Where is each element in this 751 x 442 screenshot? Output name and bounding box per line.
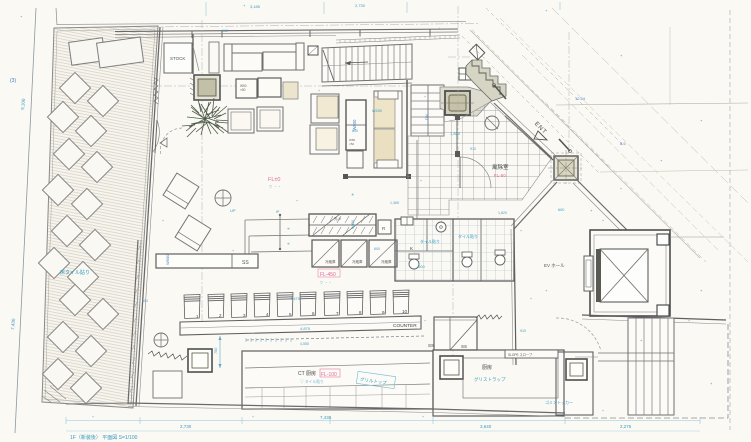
svg-text:冷蔵庫: 冷蔵庫: [352, 259, 363, 264]
svg-text:7,430: 7,430: [10, 318, 16, 330]
svg-text:+: +: [602, 219, 604, 223]
svg-text:910: 910: [520, 329, 526, 333]
svg-text:W200: W200: [372, 109, 382, 113]
svg-text:+: +: [232, 249, 234, 253]
svg-text:1,365: 1,365: [390, 201, 399, 205]
svg-text:床タイル貼り: 床タイル貼り: [60, 269, 90, 276]
svg-text:COUNTER: COUNTER: [393, 323, 417, 329]
svg-text:K: K: [410, 246, 413, 251]
svg-text:+: +: [296, 199, 298, 203]
svg-text:+: +: [92, 415, 94, 419]
svg-text:8.5: 8.5: [620, 141, 626, 146]
svg-text:FL±0: FL±0: [268, 177, 281, 183]
svg-text:+: +: [424, 95, 426, 99]
svg-text:SS: SS: [428, 343, 434, 348]
svg-text:910: 910: [470, 147, 476, 151]
svg-text:4,875: 4,875: [300, 326, 311, 331]
svg-text:7,430: 7,430: [320, 415, 332, 420]
svg-text:1F（新装後） 平面図 S=1/100: 1F（新装後） 平面図 S=1/100: [70, 434, 138, 441]
svg-text:ゴミストッカー: ゴミストッカー: [545, 399, 573, 405]
svg-text:+: +: [688, 319, 690, 323]
svg-text:▽ タイル貼り: ▽ タイル貼り: [300, 379, 324, 384]
svg-text:+: +: [530, 297, 532, 301]
svg-text:×50: ×50: [349, 142, 354, 146]
svg-text:600: 600: [418, 264, 425, 269]
svg-text:×50: ×50: [240, 88, 246, 92]
svg-text:W900: W900: [165, 254, 170, 265]
svg-text:STOCK: STOCK: [170, 56, 185, 61]
svg-text:冷蔵庫: 冷蔵庫: [381, 259, 392, 264]
svg-text:9,100: 9,100: [20, 98, 26, 110]
svg-text:+: +: [620, 187, 622, 191]
svg-text:2,730: 2,730: [180, 424, 192, 429]
svg-text:4,550: 4,550: [300, 342, 309, 346]
svg-text:冷蔵庫: 冷蔵庫: [325, 259, 336, 264]
svg-text:▽ ・・: ▽ ・・: [320, 280, 332, 285]
svg-text:FL-450: FL-450: [320, 272, 336, 278]
svg-text:UP: UP: [230, 208, 236, 213]
svg-text:タイル貼り: タイル貼り: [458, 233, 478, 239]
svg-text:1,820: 1,820: [498, 211, 507, 215]
svg-text:10: 10: [402, 309, 408, 314]
svg-text:先-9: 先-9: [334, 216, 341, 221]
svg-text:グリストラップ: グリストラップ: [474, 376, 506, 383]
svg-text:600: 600: [558, 208, 564, 212]
svg-text:厨房: 厨房: [482, 364, 492, 371]
svg-text:EV ホール: EV ホール: [544, 263, 565, 268]
svg-text:SS: SS: [242, 260, 249, 266]
svg-text:2,730: 2,730: [355, 3, 366, 8]
svg-text:+: +: [318, 89, 320, 93]
svg-text:3,185: 3,185: [250, 4, 261, 9]
svg-text:+: +: [162, 219, 164, 223]
svg-text:▽ ・・: ▽ ・・: [269, 184, 281, 189]
svg-text:+: +: [422, 415, 424, 419]
svg-text:750: 750: [214, 348, 218, 354]
svg-text:DN: DN: [424, 114, 429, 120]
svg-text:910: 910: [222, 29, 228, 33]
svg-text:SS: SS: [461, 344, 467, 349]
svg-text:FL-50: FL-50: [494, 173, 506, 178]
svg-text:600: 600: [352, 129, 358, 133]
svg-text:600: 600: [374, 247, 380, 251]
svg-text:1,820: 1,820: [450, 131, 461, 136]
svg-text:+: +: [252, 415, 254, 419]
svg-text:4,475: 4,475: [290, 296, 301, 301]
svg-text:風除室: 風除室: [492, 163, 509, 171]
svg-text:+: +: [424, 319, 426, 323]
svg-text:CT 厨房: CT 厨房: [298, 370, 316, 377]
svg-text:2,275: 2,275: [620, 424, 632, 429]
svg-text:SLOPE スロープ: SLOPE スロープ: [508, 352, 533, 357]
svg-text:600: 600: [142, 299, 148, 303]
svg-text:+: +: [602, 409, 604, 413]
svg-text:FL-100: FL-100: [321, 372, 337, 378]
svg-text:12.54: 12.54: [575, 96, 586, 101]
svg-text:3,640: 3,640: [480, 424, 492, 429]
svg-text:+: +: [520, 229, 522, 233]
svg-text:+: +: [420, 179, 422, 183]
svg-text:タイル貼り: タイル貼り: [420, 238, 440, 244]
svg-text:(3): (3): [10, 78, 16, 84]
